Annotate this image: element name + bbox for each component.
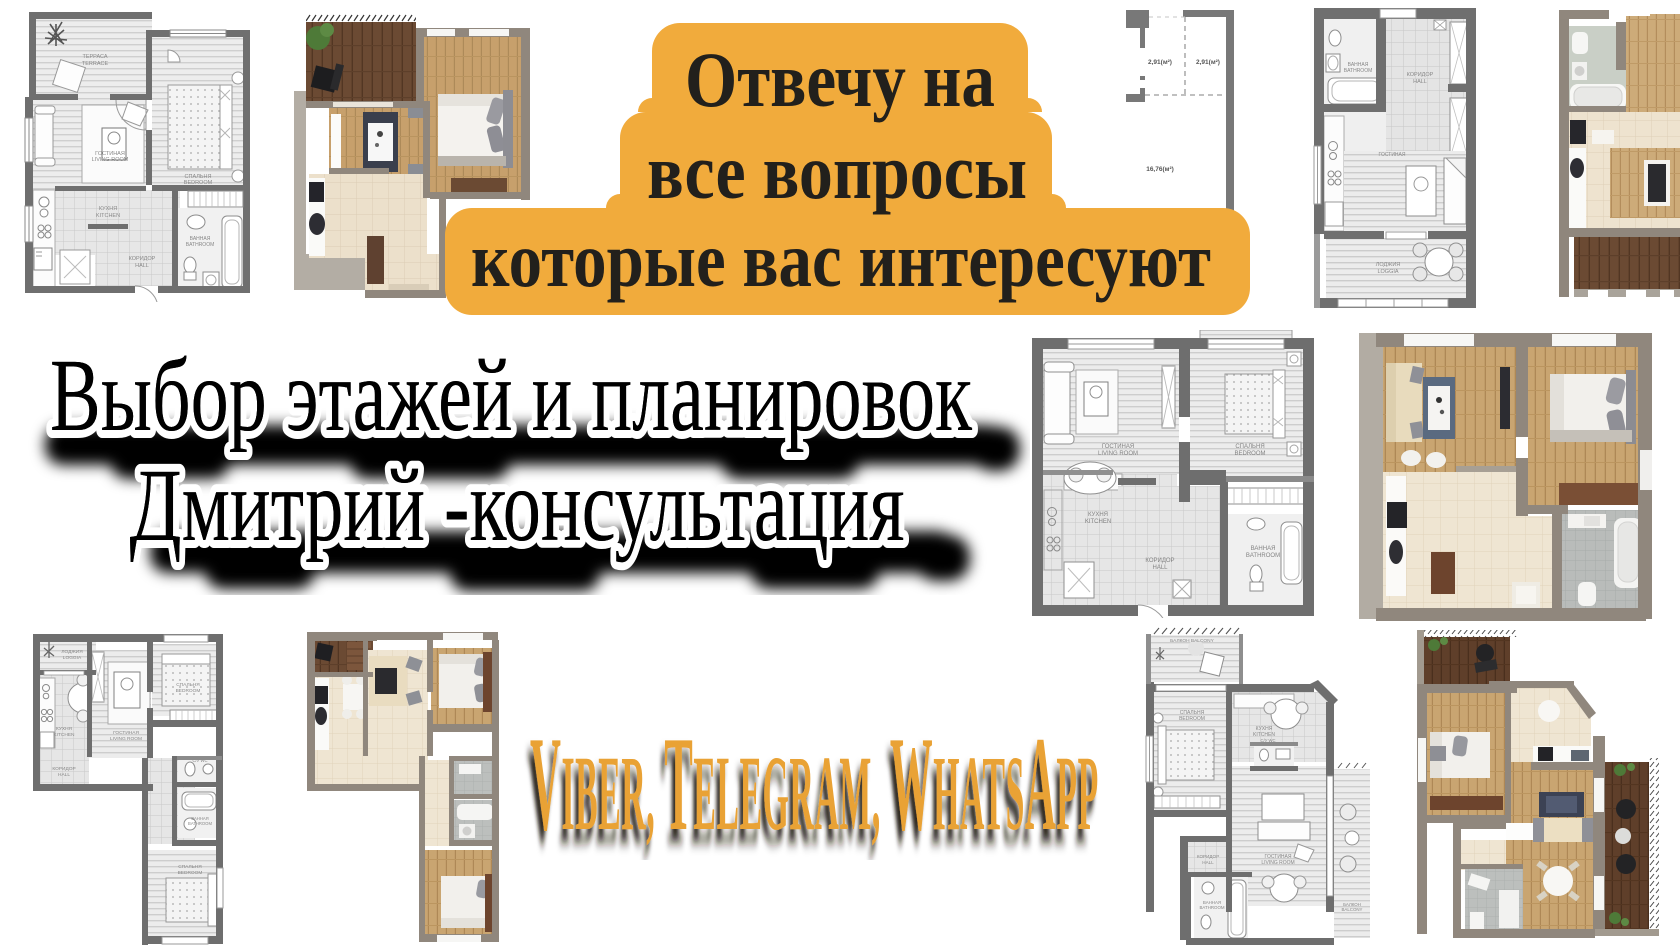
svg-text:LOGGIA: LOGGIA: [1377, 269, 1398, 275]
svg-text:ГОСТИНАЯ: ГОСТИНАЯ: [1379, 152, 1406, 158]
svg-text:СПАЛЬНЯ: СПАЛЬНЯ: [178, 864, 202, 870]
svg-text:HALL: HALL: [58, 772, 70, 778]
svg-text:ЛОДЖИЯ: ЛОДЖИЯ: [1376, 262, 1401, 268]
svg-text:ГОСТИНАЯ: ГОСТИНАЯ: [113, 730, 139, 736]
svg-text:KITCHEN: KITCHEN: [53, 732, 75, 738]
svg-text:Дмитрий -консультация: Дмитрий -консультация: [130, 448, 905, 563]
svg-text:KITCHEN: KITCHEN: [96, 213, 120, 219]
svg-text:КУХНЯ: КУХНЯ: [1088, 512, 1108, 518]
svg-text:которые вас интересуют: которые вас интересуют: [471, 216, 1211, 303]
svg-text:HALL: HALL: [1152, 565, 1168, 571]
svg-text:СПАЛЬНЯ: СПАЛЬНЯ: [176, 682, 200, 688]
svg-text:СПАЛЬНЯ: СПАЛЬНЯ: [1235, 444, 1264, 450]
svg-text:LIVING ROOM: LIVING ROOM: [110, 736, 142, 742]
svg-text:все вопросы: все вопросы: [647, 128, 1027, 215]
svg-text:BATHROOM: BATHROOM: [1344, 68, 1373, 74]
svg-text:BEDROOM: BEDROOM: [1234, 451, 1265, 457]
svg-text:HALL: HALL: [135, 263, 149, 269]
svg-text:LOGGIA: LOGGIA: [63, 655, 82, 661]
svg-text:КУХНЯ: КУХНЯ: [56, 726, 73, 732]
svg-text:LIVING ROOM: LIVING ROOM: [1098, 451, 1138, 457]
svg-text:КОРИДОР: КОРИДОР: [52, 766, 75, 772]
svg-text:КУХНЯ: КУХНЯ: [99, 206, 117, 212]
svg-text:KITCHEN: KITCHEN: [1085, 519, 1111, 525]
svg-text:BATHROOM: BATHROOM: [186, 242, 215, 248]
svg-text:КОРИДОР: КОРИДОР: [1197, 854, 1219, 859]
svg-text:ВАННАЯ: ВАННАЯ: [1251, 546, 1276, 552]
svg-text:BATHROOM: BATHROOM: [1246, 553, 1280, 559]
svg-text:КОРИДОР: КОРИДОР: [1145, 558, 1174, 564]
svg-text:BEDROOM: BEDROOM: [178, 870, 203, 876]
svg-text:VIBER, TELEGRAM, WHATSAPP: VIBER, TELEGRAM, WHATSAPP: [530, 715, 1099, 859]
svg-text:ЛОДЖИЯ: ЛОДЖИЯ: [61, 649, 83, 655]
svg-text:BEDROOM: BEDROOM: [1179, 716, 1205, 722]
svg-text:КОРИДОР: КОРИДОР: [129, 256, 156, 262]
svg-text:КОРИДОР: КОРИДОР: [1407, 72, 1434, 78]
svg-text:ТЕРРАСА: ТЕРРАСА: [82, 54, 107, 60]
svg-text:BATHROOM: BATHROOM: [1199, 905, 1224, 910]
svg-text:LIVING ROOM: LIVING ROOM: [92, 157, 129, 163]
svg-text:HALL: HALL: [1413, 79, 1427, 85]
svg-text:BEDROOM: BEDROOM: [176, 688, 201, 694]
svg-text:ГОСТИНАЯ: ГОСТИНАЯ: [1102, 444, 1134, 450]
svg-text:BATHROOM: BATHROOM: [188, 821, 212, 826]
svg-text:БАЛКОН BALCONY: БАЛКОН BALCONY: [1170, 638, 1214, 644]
svg-text:Отвечу на: Отвечу на: [685, 36, 995, 123]
svg-text:TERRACE: TERRACE: [82, 61, 109, 67]
svg-text:LIVING ROOM: LIVING ROOM: [1261, 860, 1294, 866]
svg-text:HALL: HALL: [1202, 860, 1214, 865]
svg-text:BALCONY: BALCONY: [1342, 907, 1363, 912]
svg-text:Выбор этажей и планировок: Выбор этажей и планировок: [50, 338, 972, 453]
